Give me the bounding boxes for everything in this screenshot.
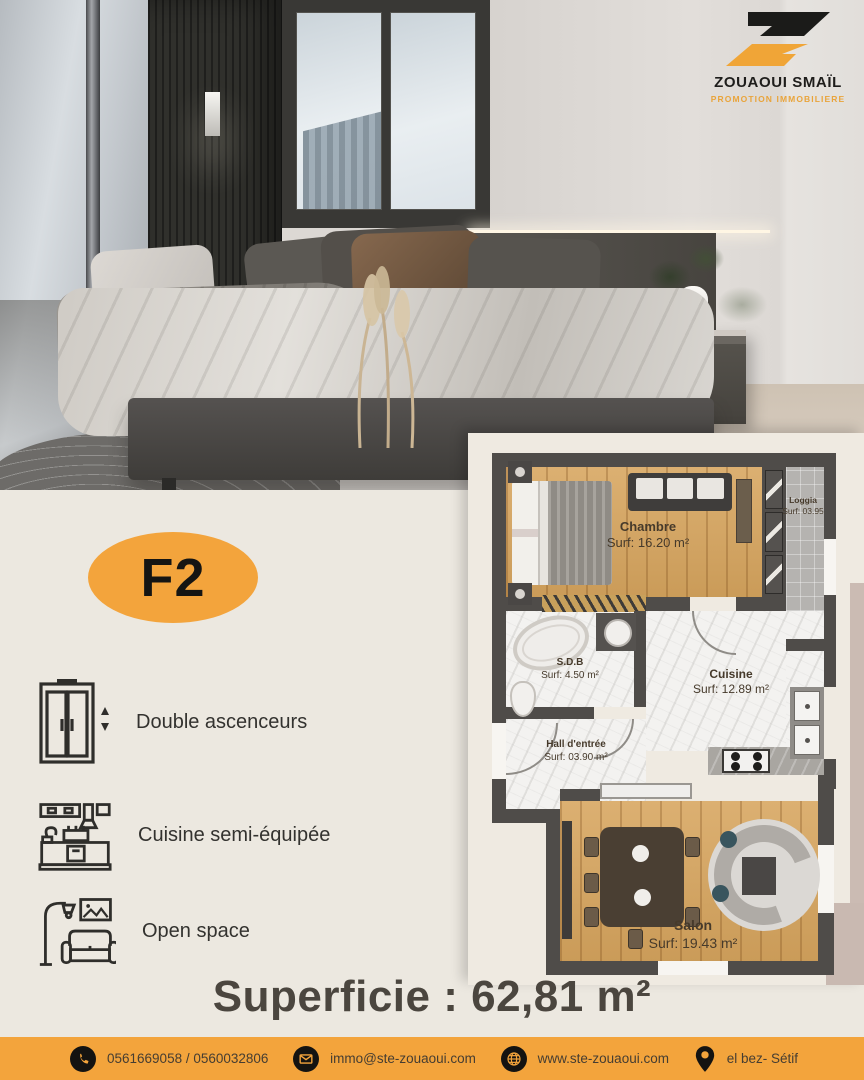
wall: [546, 809, 560, 961]
wall: [824, 651, 836, 687]
wall: [736, 597, 786, 611]
footer-website-text: www.ste-zouaoui.com: [538, 1051, 669, 1066]
photo-window-pane-right: [390, 12, 476, 210]
kitchen-icon: [38, 799, 112, 873]
plan-nightstand: [508, 583, 532, 605]
apartment-type-badge: F2: [88, 532, 258, 623]
feature-elevators: Double ascenceurs: [38, 672, 307, 772]
footer-location-text: el bez- Sétif: [727, 1051, 798, 1066]
brand-tagline: PROMOTION IMMOBILIERE: [698, 94, 858, 104]
plan-chair: [584, 907, 599, 927]
plan-chair: [584, 873, 599, 893]
plan-cushion: [712, 885, 729, 902]
elevator-icon: [38, 677, 110, 767]
wall: [560, 789, 600, 801]
feature-kitchen: Cuisine semi-équipée: [38, 788, 330, 883]
footer-website: www.ste-zouaoui.com: [501, 1046, 669, 1072]
plan-chair: [584, 837, 599, 857]
plan-chair: [685, 837, 700, 857]
envelope-icon: [293, 1046, 319, 1072]
plan-bedroom-sofa: [628, 473, 732, 511]
feature-label: Open space: [142, 920, 250, 943]
footer-phone-text: 0561669058 / 0560032806: [107, 1051, 268, 1066]
superficie-total: Superficie : 62,81 m²: [0, 972, 864, 1022]
feature-open-space: Open space: [38, 884, 250, 979]
plan-chair: [685, 907, 700, 927]
floor-plan: Chambre Surf: 16.20 m² Loggia Surf: 03.9…: [468, 433, 864, 985]
sofa-lamp-icon: [38, 895, 116, 969]
loggia-shutter-closet: [762, 467, 786, 597]
plan-bed: [512, 481, 612, 585]
phone-icon: [70, 1046, 96, 1072]
plan-chair: [628, 929, 643, 949]
plan-cushion: [720, 831, 737, 848]
wall: [786, 639, 836, 651]
plan-washbasin: [596, 613, 636, 651]
flyer-page: ZOUAOUI SMAÏL PROMOTION IMMOBILIERE F2 D…: [0, 0, 864, 1080]
plan-dining-table: [600, 827, 684, 927]
plan-stove: [722, 749, 770, 773]
footer-email: immo@ste-zouaoui.com: [293, 1046, 476, 1072]
window-radiator-hatch: [542, 595, 646, 612]
brand-logo: ZOUAOUI SMAÏL PROMOTION IMMOBILIERE: [698, 8, 858, 104]
plan-breakfast-bar: [600, 783, 692, 799]
plan-bedroom-unit: [736, 479, 752, 543]
photo-wall-sconce: [205, 92, 220, 136]
plan-nightstand: [508, 461, 532, 483]
globe-icon: [501, 1046, 527, 1072]
z-parallelogram-logo-icon: [718, 8, 838, 72]
wall: [818, 775, 834, 845]
plan-kitchen-sink: [790, 687, 824, 759]
footer-bar: 0561669058 / 0560032806 immo@ste-zouaoui…: [0, 1037, 864, 1080]
location-pin-icon: [694, 1045, 716, 1073]
feature-label: Double ascenceurs: [136, 711, 307, 734]
wall: [492, 611, 506, 723]
footer-email-text: immo@ste-zouaoui.com: [330, 1051, 476, 1066]
wall: [492, 453, 836, 467]
photo-pampas-grass: [330, 248, 440, 448]
apartment-type-label: F2: [140, 547, 205, 609]
footer-location: el bez- Sétif: [694, 1045, 798, 1073]
feature-label: Cuisine semi-équipée: [138, 824, 330, 847]
photo-window: [282, 0, 490, 228]
wall: [492, 707, 594, 719]
loggia-window-opening: [824, 539, 836, 595]
wall: [646, 597, 690, 611]
entrance-door-opening: [492, 723, 506, 779]
salon-window-opening: [818, 845, 834, 913]
footer-phone: 0561669058 / 0560032806: [70, 1046, 268, 1072]
photo-window-pane-left: [296, 12, 382, 210]
wall: [492, 453, 506, 611]
brand-name: ZOUAOUI SMAÏL: [698, 74, 858, 91]
wall: [824, 453, 836, 539]
plan-tv-unit: [562, 821, 572, 939]
